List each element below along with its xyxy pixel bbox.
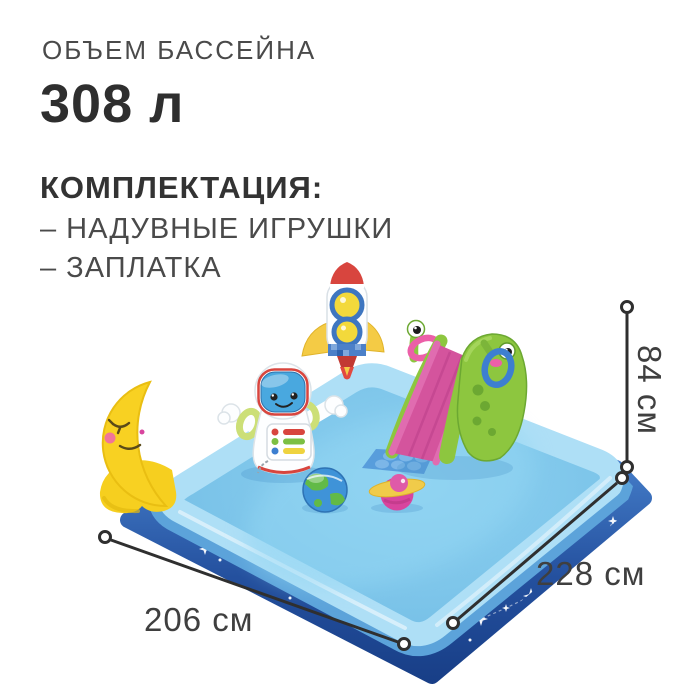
dimension-label-left-side: 206 см xyxy=(144,601,253,639)
rocket-toy xyxy=(302,262,384,380)
rocket-fin-left xyxy=(302,322,330,356)
product-photo xyxy=(0,0,700,700)
earth-ball-toy xyxy=(302,468,348,514)
rocket-nose xyxy=(330,262,364,286)
moon-toy xyxy=(100,382,176,513)
dimension-label-right-side: 228 см xyxy=(536,555,645,593)
rocket-flame xyxy=(337,356,357,367)
dimension-label-height: 84 см xyxy=(630,330,668,450)
product-card: ОБЪЕМ БАССЕЙНА 308 л КОМПЛЕКТАЦИЯ: – НАД… xyxy=(0,0,700,700)
